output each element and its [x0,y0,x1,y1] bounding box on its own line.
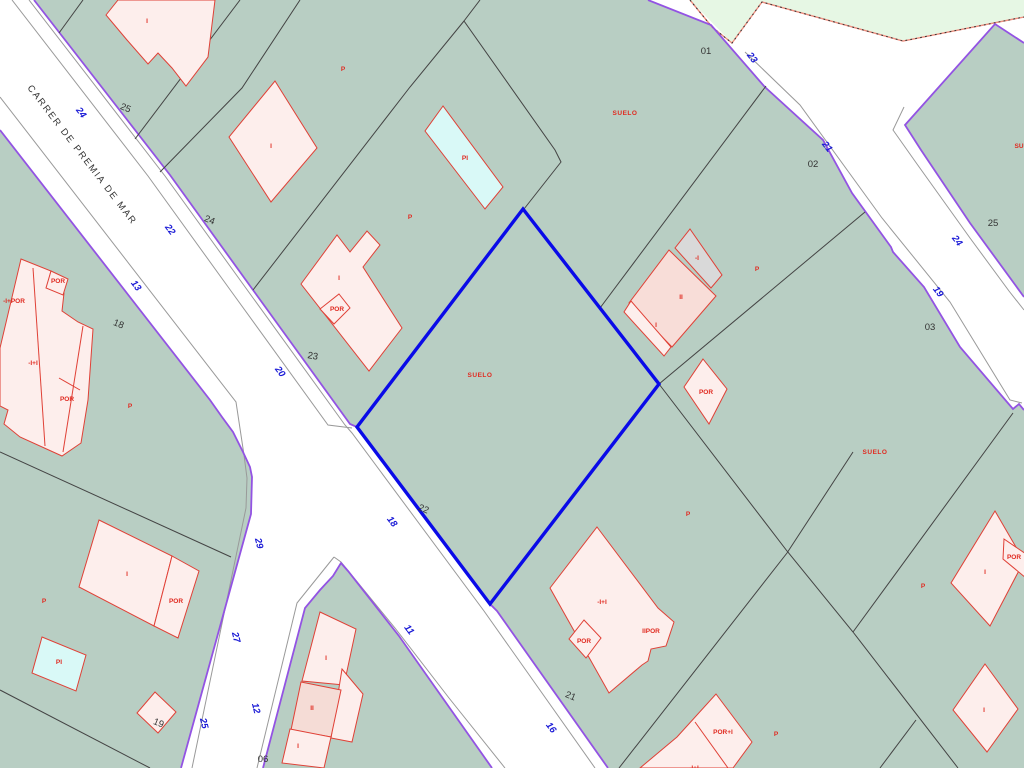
svg-text:SUELO: SUELO [468,372,493,379]
svg-text:II: II [310,705,314,712]
svg-text:01: 01 [701,46,712,57]
svg-text:I: I [297,743,299,750]
svg-text:POR: POR [60,396,74,403]
svg-text:P: P [774,731,779,738]
svg-text:I: I [983,707,985,714]
svg-text:P: P [686,511,691,518]
svg-text:I: I [325,655,327,662]
svg-text:-I: -I [695,255,699,262]
svg-text:SU: SU [1014,143,1023,150]
svg-text:SUELO: SUELO [613,110,638,117]
svg-text:PI: PI [56,659,62,666]
svg-text:POR: POR [699,389,713,396]
svg-text:P: P [408,214,413,221]
svg-text:I: I [270,143,272,150]
svg-text:03: 03 [925,322,936,333]
svg-text:POR: POR [169,598,183,605]
svg-text:POR: POR [1007,554,1021,561]
svg-text:P: P [921,583,926,590]
svg-text:02: 02 [808,159,819,170]
svg-text:P: P [341,66,346,73]
svg-text:I: I [126,571,128,578]
svg-text:I: I [146,18,148,25]
svg-text:P: P [755,266,760,273]
svg-text:P: P [42,598,47,605]
svg-text:I: I [655,322,657,329]
svg-text:06: 06 [258,754,269,765]
svg-text:-I+I: -I+I [28,360,38,367]
svg-text:SUELO: SUELO [863,449,888,456]
svg-text:POR: POR [51,278,65,285]
svg-text:25: 25 [988,218,999,229]
svg-text:POR+I: POR+I [713,729,733,736]
svg-text:POR: POR [577,638,591,645]
svg-text:P: P [128,403,133,410]
svg-text:23: 23 [307,350,319,363]
svg-text:-I+POR: -I+POR [3,298,25,305]
svg-text:PI: PI [462,155,468,162]
svg-text:POR: POR [330,306,344,313]
svg-text:-I+I: -I+I [597,599,607,606]
svg-text:I: I [984,569,986,576]
svg-text:I: I [338,275,340,282]
svg-text:IIPOR: IIPOR [642,628,660,635]
svg-text:II: II [679,294,683,301]
